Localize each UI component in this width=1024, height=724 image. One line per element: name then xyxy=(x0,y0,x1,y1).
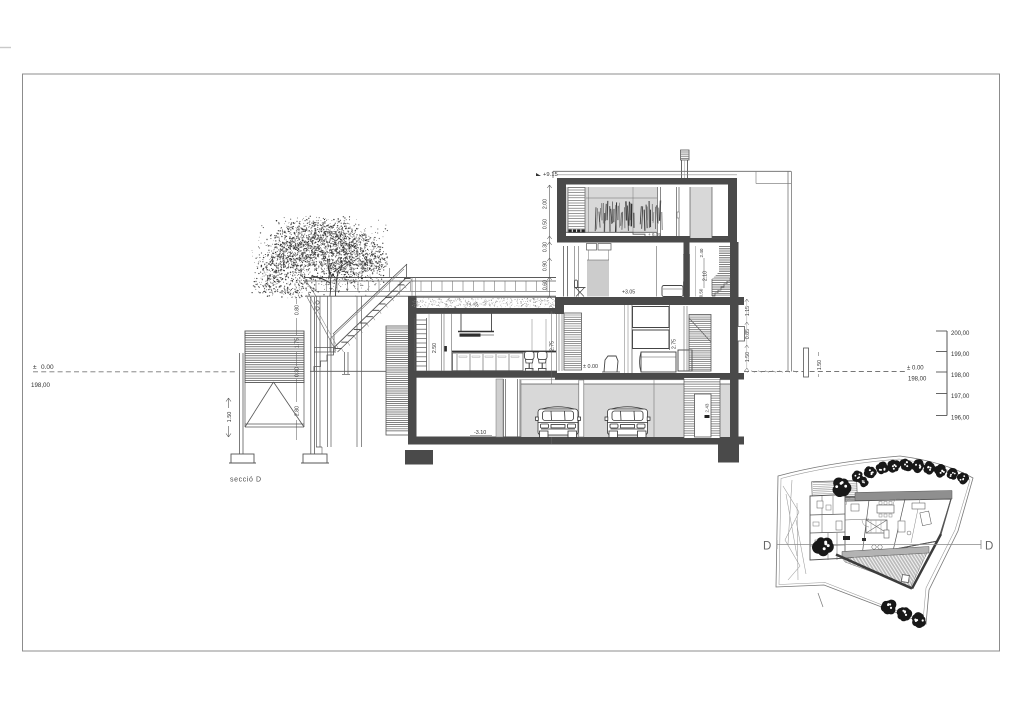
svg-text:200,00: 200,00 xyxy=(951,331,970,337)
svg-text:199,00: 199,00 xyxy=(951,352,970,358)
svg-text:2.43: 2.43 xyxy=(705,403,710,412)
svg-text:0.00: 0.00 xyxy=(41,364,54,371)
svg-text:196,00: 196,00 xyxy=(951,416,970,422)
svg-text:+3.05: +3.05 xyxy=(622,290,635,296)
svg-text:0.85: 0.85 xyxy=(745,329,751,339)
svg-text:0.60: 0.60 xyxy=(543,280,549,290)
svg-text:198,00: 198,00 xyxy=(951,373,970,379)
svg-text:2.40: 2.40 xyxy=(699,248,704,257)
svg-text:0.50: 0.50 xyxy=(699,288,704,297)
svg-text:1.50: 1.50 xyxy=(227,412,233,423)
svg-text:1.15: 1.15 xyxy=(745,306,751,316)
svg-text:+ 6.05: + 6.05 xyxy=(648,232,661,237)
svg-text:2.00: 2.00 xyxy=(543,199,549,209)
svg-text:0.30: 0.30 xyxy=(543,242,549,252)
svg-text:0.30: 0.30 xyxy=(295,367,301,377)
svg-text:2.75: 2.75 xyxy=(550,341,556,351)
svg-text:0.80: 0.80 xyxy=(295,305,301,315)
svg-text:+4.45: +4.45 xyxy=(466,302,478,307)
svg-text:198,00: 198,00 xyxy=(31,382,50,389)
svg-text:D: D xyxy=(985,541,993,553)
svg-text:2.50: 2.50 xyxy=(432,343,438,353)
svg-text:D: D xyxy=(763,541,771,553)
svg-text:198,00: 198,00 xyxy=(908,377,927,383)
svg-text:2.10: 2.10 xyxy=(703,271,709,281)
svg-text:secció D: secció D xyxy=(230,477,262,484)
svg-text:+9.15: +9.15 xyxy=(543,172,558,178)
svg-text:0.50: 0.50 xyxy=(543,219,549,229)
svg-text:±: ± xyxy=(33,364,37,371)
svg-text:2.75: 2.75 xyxy=(672,339,678,349)
svg-text:± 0.00: ± 0.00 xyxy=(907,366,924,372)
svg-text:1.50: 1.50 xyxy=(745,352,751,362)
svg-text:± 0.00: ± 0.00 xyxy=(583,364,598,370)
svg-text:197,00: 197,00 xyxy=(951,394,970,400)
svg-text:1.50: 1.50 xyxy=(817,360,823,370)
svg-text:-3.10: -3.10 xyxy=(474,430,486,436)
svg-text:0.90: 0.90 xyxy=(543,261,549,271)
svg-text:1.75: 1.75 xyxy=(295,338,301,348)
svg-text:2.80: 2.80 xyxy=(295,406,301,416)
